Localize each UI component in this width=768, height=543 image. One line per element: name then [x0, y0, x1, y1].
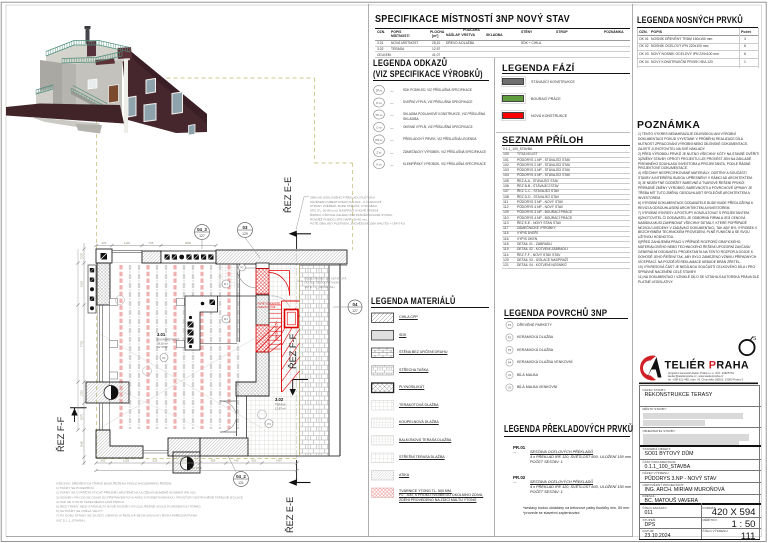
- svg-text:VŠECHNY DŘEVĚNÝCH TRÁMŮ BUDE Ř: VŠECHNY DŘEVĚNÝCH TRÁMŮ BUDE ŘEŠENA PODL…: [56, 481, 172, 486]
- svg-text:7) PO DOBU STAVBY SE ZAJISTÍ,: 7) PO DOBU STAVBY SE ZAJISTÍ, OBNOVA IX …: [56, 513, 198, 518]
- svg-text:tel.: 608 612 485, nám. W. Chu: tel.: 608 612 485, nám. W. Churchilla 18…: [668, 378, 744, 382]
- svg-text:VIZ D.1.1_100(DETAIL): VIZ D.1.1_100(DETAIL): [305, 285, 336, 289]
- svg-text:P4: P4: [508, 361, 512, 365]
- svg-text:K.xx: K.xx: [376, 162, 382, 166]
- svg-text:(VIZ D.1.1_STAVBA ): (VIZ D.1.1_STAVBA ): [56, 518, 85, 522]
- svg-text:SV 2700: SV 2700: [157, 345, 168, 349]
- svg-text:ŘEZ F-F: ŘEZ F-F: [288, 333, 298, 369]
- svg-text:SPS (TL. 60-80 mm), NÁSPRAŽÍ A: SPS (TL. 60-80 mm), NÁSPRAŽÍ A NOVĚ SPOD…: [310, 208, 379, 213]
- svg-text:ŘEZ E-E: ŘEZ E-E: [285, 497, 295, 533]
- svg-text:2600: 2600: [80, 440, 84, 447]
- svg-text:5) MEZI TRÁMY, MEZI STÁVAJÍCÍ: 5) MEZI TRÁMY, MEZI STÁVAJÍCÍ A NOVÉ NOS…: [56, 504, 201, 509]
- svg-text:127: 127: [352, 309, 358, 313]
- svg-text:04_2: 04_2: [236, 474, 246, 479]
- svg-text:3.02: 3.02: [275, 397, 284, 402]
- svg-text:U1: U1: [508, 373, 512, 377]
- svg-text:1555: 1555: [80, 252, 84, 259]
- svg-text:129: 129: [242, 232, 248, 236]
- svg-text:ZÁVĚSEM COBERTOVÉHO KALTEX - Z: ZÁVĚSEM COBERTOVÉHO KALTEX - Z VENKOVNÍ: [310, 199, 382, 204]
- svg-text:127: 127: [199, 234, 205, 238]
- svg-text:STRANY ZVĚŘENÍ, BUDE STĚLÁNÍ,: STRANY ZVĚŘENÍ, BUDE STĚLÁNÍ, VYPLNĚNA: [310, 203, 377, 208]
- svg-text:O.xx: O.xx: [376, 125, 382, 129]
- svg-text:03: 03: [243, 225, 248, 230]
- svg-text:P2: P2: [508, 336, 512, 340]
- svg-text:4125: 4125: [80, 280, 84, 287]
- svg-text:2675: 2675: [80, 413, 84, 420]
- svg-text:1) TRÁMY SE PODEPŘOU,: 1) TRÁMY SE PODEPŘOU,: [56, 485, 95, 490]
- svg-text:POTÉ OBKLADY PLETIVEM, ZNOVĚDO: POTÉ OBKLADY PLETIVEM, ZNOVĚDONÍ 100A WA…: [310, 221, 405, 226]
- svg-text:625: 625: [153, 459, 158, 463]
- svg-text:04: 04: [353, 302, 358, 307]
- svg-text:500: 500: [101, 459, 106, 463]
- svg-text:ROVNĚŽ POBIDCI SPS NAPŘ. 50-40: ROVNĚŽ POBIDCI SPS NAPŘ. 50-40 mm,: [310, 216, 368, 221]
- svg-text:1140: 1140: [124, 241, 130, 245]
- svg-text:7725: 7725: [80, 340, 84, 347]
- svg-text:2110: 2110: [80, 390, 84, 396]
- svg-text:2) TRÁMY SE VYPŘÍČNÍ STICHÝ P: 2) TRÁMY SE VYPŘÍČNÍ STICHÝ PŘESNĚ UMÍST…: [56, 490, 196, 495]
- svg-text:28x180x250: 28x180x250: [275, 321, 279, 340]
- svg-text:955: 955: [211, 459, 216, 463]
- svg-text:OCELOVÁ KCE: OCELOVÁ KCE: [258, 306, 276, 309]
- svg-text:D.xx: D.xx: [376, 101, 382, 105]
- svg-text:U2: U2: [508, 386, 512, 390]
- svg-text:ŘEZ F-F: ŘEZ F-F: [56, 416, 66, 452]
- svg-text:28,10 m²: 28,10 m²: [157, 341, 168, 345]
- svg-text:PK.xx: PK.xx: [376, 113, 383, 117]
- svg-text:ŘIDNICÍ A ŠIKOLE CELÉHO ZVE PA: ŘIDNICÍ A ŠIKOLE CELÉHO ZVE PANVĚZNOVANÉ…: [310, 212, 393, 217]
- svg-text:04_3: 04_3: [197, 227, 207, 232]
- svg-text:P4: P4: [267, 422, 271, 426]
- svg-text:Z.xx: Z.xx: [377, 150, 383, 154]
- svg-text:P1: P1: [508, 323, 512, 327]
- svg-text:PR.xx: PR.xx: [376, 138, 384, 142]
- svg-text:2060: 2060: [185, 241, 192, 245]
- svg-text:ŘEZ E-E: ŘEZ E-E: [283, 177, 293, 213]
- svg-text:3.01: 3.01: [157, 332, 166, 337]
- svg-text:1070: 1070: [181, 459, 188, 463]
- svg-text:3) NOSNÍKY IPN 220 SE OSADÍ D: 3) NOSNÍKY IPN 220 SE OSADÍ DO PŘIPRAVEN…: [56, 494, 243, 499]
- svg-text:M.1: M.1: [224, 283, 229, 286]
- svg-text:P1: P1: [162, 356, 166, 360]
- svg-text:1125: 1125: [123, 459, 129, 463]
- svg-text:740: 740: [234, 459, 239, 463]
- svg-text:4) NAD SE VYPLNÍ TEPELNĚIZOLAČ: 4) NAD SE VYPLNÍ TEPELNĚIZOLAČNÍ PĚNOU,: [56, 499, 125, 504]
- svg-text:1457: 1457: [276, 459, 283, 463]
- svg-text:NOVÁ MÍSTNOST: NOVÁ MÍSTNOST: [157, 338, 180, 342]
- svg-text:121: 121: [238, 481, 244, 485]
- svg-text:TELIÉR PRAHA: TELIÉR PRAHA: [665, 359, 750, 372]
- svg-text:M.1: M.1: [224, 318, 229, 321]
- svg-text:6) NA TRÁMY SE OPĚLÁ VELITÝ: 6) NA TRÁMY SE OPĚLÁ VELITÝ: [56, 508, 103, 513]
- svg-text:620: 620: [252, 459, 257, 463]
- svg-text:P3: P3: [508, 348, 512, 352]
- svg-text:S: S: [753, 336, 757, 342]
- svg-text:600: 600: [102, 241, 107, 245]
- svg-text:SP.xx: SP.xx: [376, 88, 383, 92]
- svg-text:725: 725: [149, 241, 154, 245]
- svg-text:OBKLAD SOKLOVÉHO P ŘEKLADU PLE: OBKLAD SOKLOVÉHO P ŘEKLADU PLETIVA A: [310, 195, 375, 200]
- svg-text:TERASA: TERASA: [275, 403, 286, 407]
- svg-text:+10 1860: +10 1860: [190, 466, 202, 470]
- svg-text:12,97 m²: 12,97 m²: [275, 406, 286, 410]
